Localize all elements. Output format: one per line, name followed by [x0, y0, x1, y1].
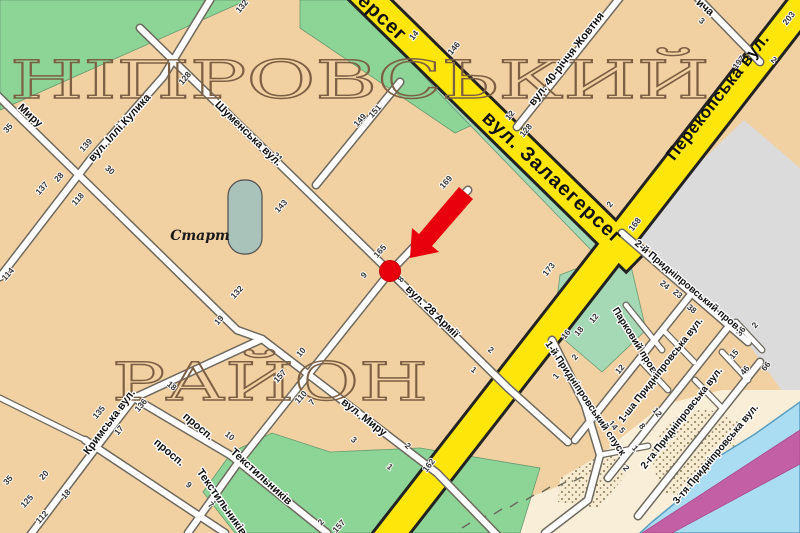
poi-labels: Старт — [170, 228, 230, 244]
map-viewport: НІПРОВСЬКИЙРАЙОН Старт 13212813935302813… — [0, 0, 800, 533]
city-map[interactable]: НІПРОВСЬКИЙРАЙОН Старт 13212813935302813… — [0, 0, 800, 533]
district-name-label: НІПРОВСЬКИЙ — [10, 47, 710, 111]
marker-dot-icon — [380, 261, 401, 282]
poi-label: Старт — [170, 228, 230, 244]
district-name-label: РАЙОН — [112, 349, 428, 413]
stadium-start — [228, 180, 262, 254]
